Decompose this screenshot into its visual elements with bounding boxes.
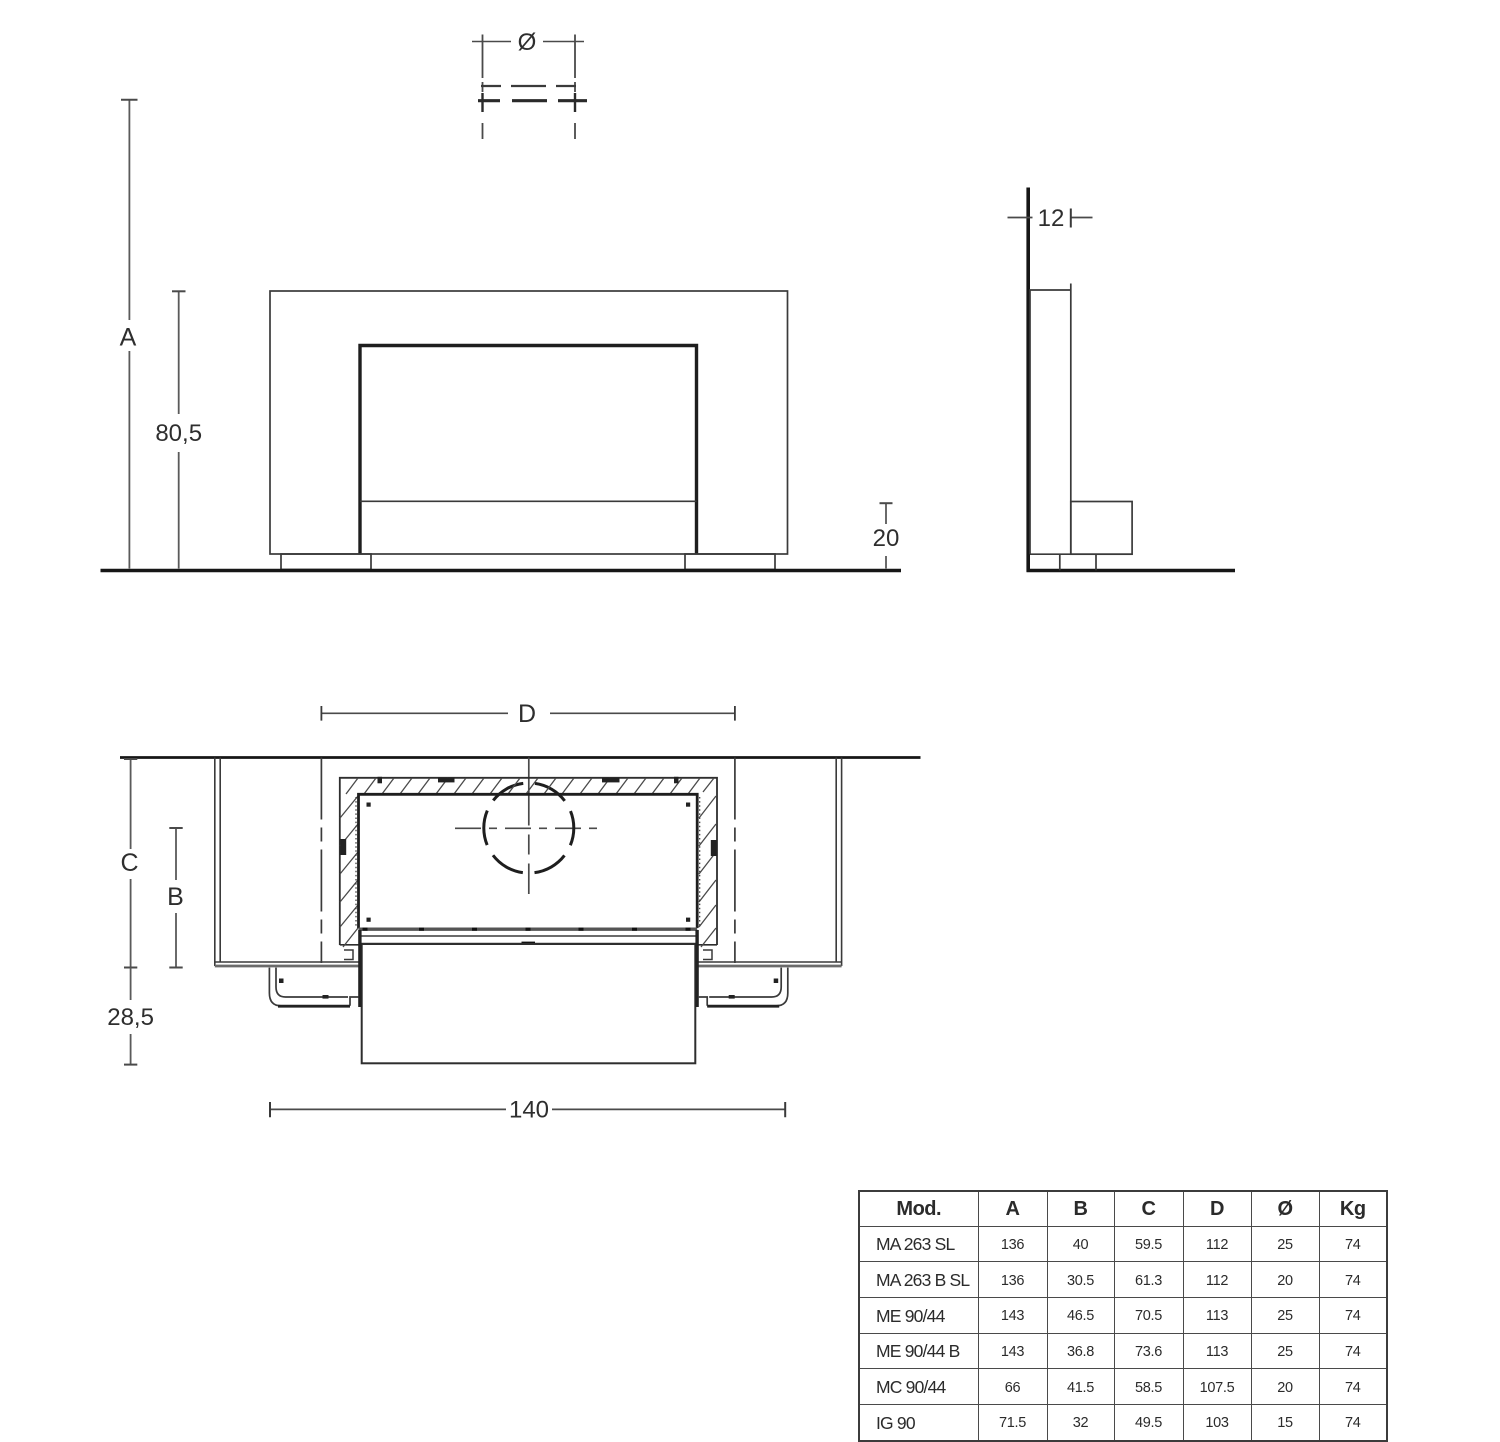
svg-text:A: A bbox=[120, 324, 137, 352]
svg-text:20: 20 bbox=[873, 525, 900, 552]
svg-text:D: D bbox=[518, 700, 536, 728]
svg-text:28,5: 28,5 bbox=[107, 1004, 154, 1031]
svg-text:12: 12 bbox=[1038, 205, 1065, 232]
svg-text:80,5: 80,5 bbox=[155, 420, 202, 447]
svg-text:B: B bbox=[167, 883, 184, 911]
svg-text:140: 140 bbox=[509, 1097, 549, 1124]
svg-text:Ø: Ø bbox=[518, 29, 537, 56]
svg-text:C: C bbox=[120, 849, 138, 877]
